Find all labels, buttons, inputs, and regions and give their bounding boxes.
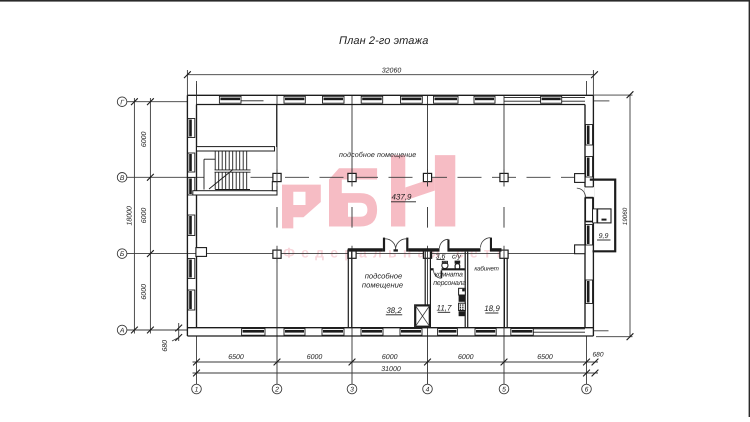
svg-text:6000: 6000 [141, 284, 148, 300]
svg-text:подсобное помещение: подсобное помещение [339, 151, 416, 159]
svg-text:18,9: 18,9 [484, 304, 500, 313]
svg-text:6000: 6000 [382, 354, 398, 361]
svg-text:Б: Б [120, 251, 125, 258]
svg-text:6500: 6500 [228, 354, 244, 361]
svg-text:11,7: 11,7 [437, 303, 453, 312]
svg-text:2: 2 [274, 387, 279, 394]
svg-text:437,9: 437,9 [391, 193, 412, 202]
svg-text:18000: 18000 [127, 206, 134, 226]
svg-text:19060: 19060 [622, 207, 629, 225]
svg-text:6000: 6000 [141, 132, 148, 148]
svg-text:32060: 32060 [382, 68, 402, 75]
svg-text:680: 680 [592, 352, 603, 359]
svg-text:Федеральная сеть: Федеральная сеть [283, 245, 512, 261]
svg-text:6000: 6000 [458, 354, 474, 361]
svg-text:1: 1 [195, 387, 199, 394]
svg-text:персонала: персонала [433, 280, 466, 287]
svg-text:4: 4 [426, 387, 430, 394]
svg-text:План 2-го этажа: План 2-го этажа [339, 35, 428, 47]
svg-text:5: 5 [502, 387, 506, 394]
svg-text:6000: 6000 [307, 354, 323, 361]
svg-text:38,2: 38,2 [386, 306, 402, 315]
svg-text:31000: 31000 [381, 366, 401, 373]
svg-text:комната: комната [435, 272, 463, 279]
svg-text:кабинет: кабинет [474, 266, 498, 273]
svg-text:подсобное: подсобное [365, 272, 403, 281]
svg-text:с/у: с/у [452, 252, 461, 260]
svg-text:9,9: 9,9 [599, 233, 609, 240]
svg-text:3: 3 [350, 387, 354, 394]
svg-text:6500: 6500 [537, 354, 553, 361]
svg-text:6000: 6000 [141, 208, 148, 224]
svg-text:А: А [119, 328, 125, 335]
svg-text:помещение: помещение [362, 280, 403, 289]
svg-text:6: 6 [585, 387, 589, 394]
svg-text:В: В [120, 175, 125, 182]
svg-text:680: 680 [162, 340, 169, 352]
